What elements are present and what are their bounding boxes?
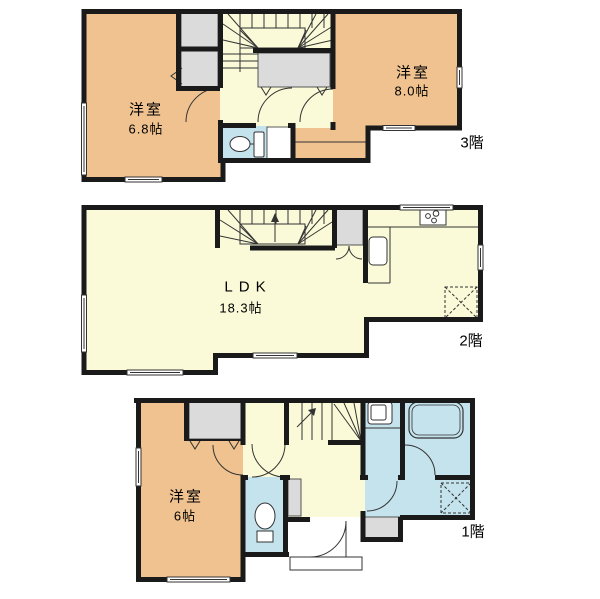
room-label-2f-ldk: LDK	[224, 279, 271, 296]
floor-label-1f: 1階	[461, 521, 484, 542]
floor-label-3f: 3階	[460, 132, 483, 153]
stove-icon	[420, 210, 446, 225]
ldk-room	[84, 205, 481, 373]
closet	[258, 53, 330, 87]
room-size-3f-west: 6.8帖	[128, 119, 163, 138]
closet	[336, 208, 363, 245]
floorplan-drawing	[0, 0, 600, 599]
shoe-cabinet	[288, 479, 301, 516]
room-label-1f: 洋室	[169, 486, 203, 507]
room-size-1f: 6帖	[174, 506, 196, 525]
room-label-3f-west: 洋室	[129, 99, 163, 120]
kitchen-sink-icon	[369, 237, 387, 265]
entrance-genkan	[288, 520, 362, 557]
closet	[189, 402, 241, 439]
room-size-2f-ldk: 18.3帖	[219, 298, 262, 317]
room-label-3f-east: 洋室	[396, 62, 430, 83]
closet	[181, 13, 218, 48]
storage-strip-3f	[293, 128, 370, 163]
floor-label-2f: 2階	[459, 330, 482, 351]
closet	[181, 51, 218, 87]
porch-step	[290, 557, 362, 570]
toilet-icon	[255, 503, 275, 542]
floor-2f-plan	[82, 205, 484, 375]
room-size-3f-east: 8.0帖	[394, 81, 429, 100]
storage-box	[365, 517, 401, 538]
floorplan-canvas: 洋室 6.8帖 洋室 8.0帖 3階 LDK 18.3帖 2階 洋室 6帖 1階	[0, 0, 600, 599]
